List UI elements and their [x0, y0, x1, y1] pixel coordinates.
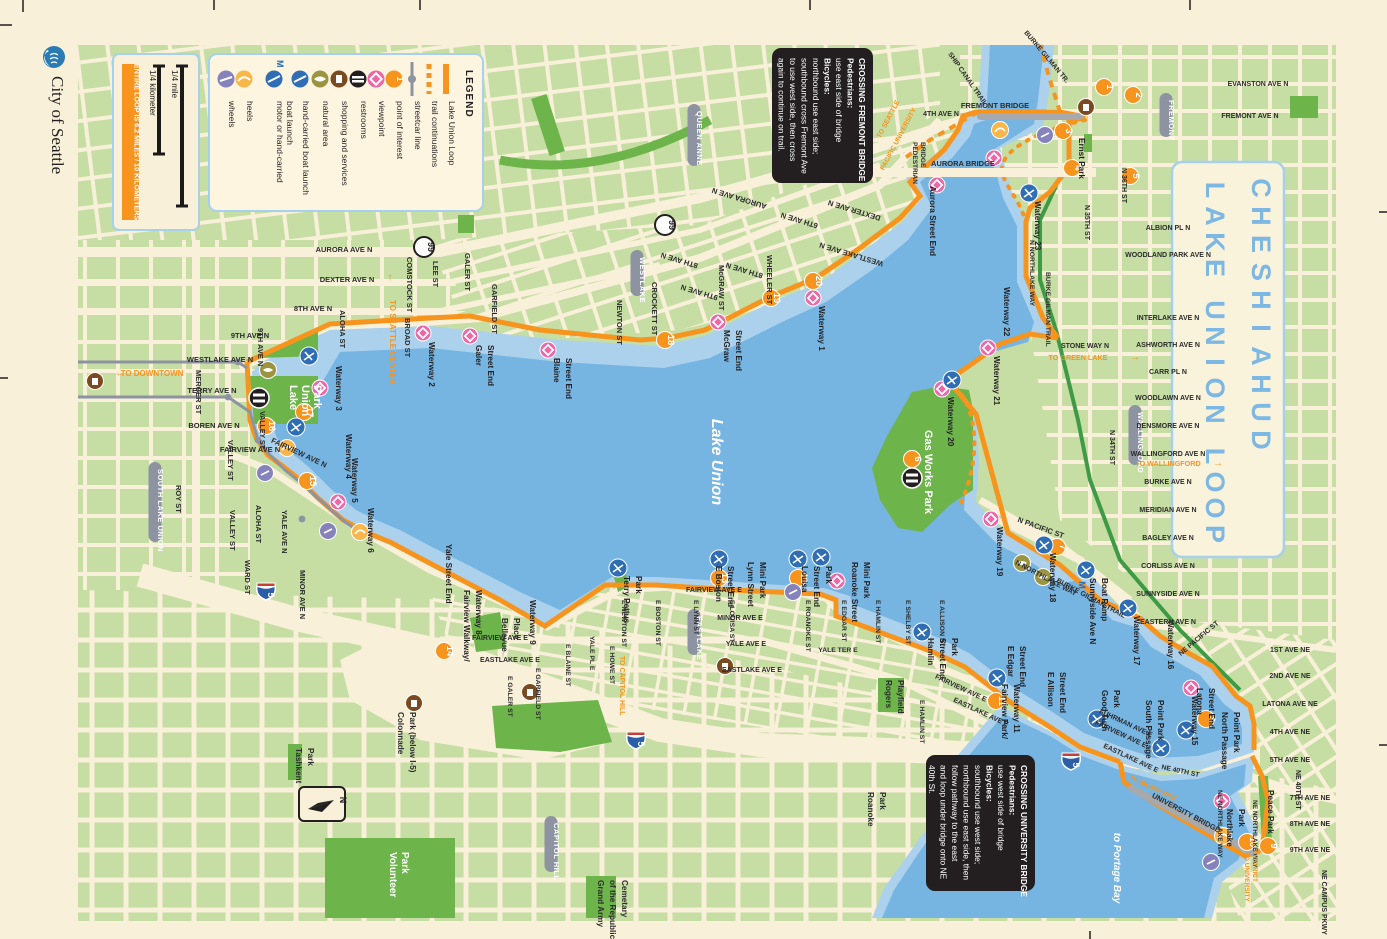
- svg-text:MINOR AVE E: MINOR AVE E: [717, 615, 763, 622]
- svg-text:MINOR AVE N: MINOR AVE N: [298, 570, 307, 619]
- svg-text:FAIRVIEW AVE E: FAIRVIEW AVE E: [472, 635, 528, 642]
- svg-text:shopping and services: shopping and services: [340, 101, 350, 186]
- svg-text:9: 9: [1268, 843, 1279, 848]
- svg-text:EASTLAKE AVE E: EASTLAKE AVE E: [722, 667, 782, 674]
- svg-text:5: 5: [1130, 173, 1141, 179]
- svg-text:use west side of bridge: use west side of bridge: [996, 765, 1006, 851]
- svg-text:BURKE AVE N: BURKE AVE N: [1144, 479, 1191, 486]
- svg-text:CORLISS AVE N: CORLISS AVE N: [1141, 563, 1195, 570]
- svg-text:WOODLAND PARK AVE N: WOODLAND PARK AVE N: [1125, 252, 1211, 259]
- svg-text:Louisa: Louisa: [800, 566, 809, 593]
- svg-text:H: H: [1246, 290, 1276, 310]
- svg-text:D: D: [1246, 430, 1276, 450]
- svg-text:EVANSTON AVE N: EVANSTON AVE N: [1228, 81, 1289, 88]
- svg-text:LEGEND: LEGEND: [463, 70, 474, 118]
- svg-text:1: 1: [1104, 84, 1115, 90]
- svg-text:Aurora Street End: Aurora Street End: [928, 186, 937, 256]
- svg-text:1/4 mile: 1/4 mile: [170, 70, 179, 99]
- svg-text:ROY ST: ROY ST: [174, 485, 183, 513]
- svg-text:Grand Army: Grand Army: [596, 880, 605, 927]
- svg-text:E SHELBY ST: E SHELBY ST: [904, 600, 911, 645]
- svg-text:SUNNYSIDE AVE N: SUNNYSIDE AVE N: [1136, 591, 1199, 598]
- svg-text:N NORTHLAKE WAY: N NORTHLAKE WAY: [1028, 240, 1035, 307]
- svg-text:E GALER ST: E GALER ST: [506, 676, 513, 718]
- svg-text:natural area: natural area: [321, 101, 331, 147]
- svg-text:SOUTH LAKE UNION: SOUTH LAKE UNION: [156, 469, 165, 552]
- svg-text:40th St.: 40th St.: [927, 765, 937, 794]
- svg-text:Point Park: Point Park: [1232, 712, 1241, 753]
- svg-text:Waterway 5: Waterway 5: [350, 458, 359, 503]
- svg-text:4TH AVE N: 4TH AVE N: [923, 111, 959, 118]
- svg-text:VALLEY ST: VALLEY ST: [226, 440, 235, 481]
- svg-text:N: N: [1200, 326, 1230, 346]
- svg-text:TO UNIVERSITY: TO UNIVERSITY: [1243, 852, 1250, 902]
- svg-text:AURORA BRIDGE: AURORA BRIDGE: [931, 159, 995, 168]
- svg-text:20: 20: [813, 276, 824, 287]
- svg-text:heels: heels: [245, 101, 255, 121]
- svg-text:ASHWORTH AVE N: ASHWORTH AVE N: [1136, 342, 1200, 349]
- svg-text:TO CAPITOL HILL: TO CAPITOL HILL: [618, 656, 625, 716]
- svg-text:Park: Park: [950, 638, 959, 656]
- svg-text:use east side of bridge: use east side of bridge: [834, 58, 844, 143]
- svg-text:BRIDGE: BRIDGE: [919, 142, 926, 168]
- svg-text:motor or hand-carried: motor or hand-carried: [275, 101, 285, 183]
- svg-text:COMSTOCK ST: COMSTOCK ST: [405, 257, 414, 313]
- svg-text:point of interest: point of interest: [395, 101, 405, 160]
- svg-text:Waterway 20: Waterway 20: [946, 397, 955, 447]
- svg-text:TO SEATTLE CENTER: TO SEATTLE CENTER: [388, 300, 397, 384]
- svg-text:WALLINGFORD AVE N: WALLINGFORD AVE N: [1131, 451, 1206, 458]
- svg-text:Street End: Street End: [812, 566, 821, 607]
- svg-text:Park: Park: [634, 576, 643, 594]
- svg-text:EASTLAKE AVE E: EASTLAKE AVE E: [480, 657, 540, 664]
- svg-text:PEDESTRIAN: PEDESTRIAN: [911, 142, 918, 184]
- svg-text:VALLEY ST: VALLEY ST: [228, 510, 237, 551]
- svg-text:again to continue on trail.: again to continue on trail.: [777, 58, 787, 152]
- svg-text:NE 40TH ST: NE 40TH ST: [1294, 770, 1301, 810]
- svg-text:Park: Park: [306, 748, 315, 766]
- svg-text:WHEELER ST: WHEELER ST: [765, 255, 774, 305]
- svg-text:DEXTER AVE N: DEXTER AVE N: [320, 275, 375, 284]
- svg-text:LATONA AVE NE: LATONA AVE NE: [1262, 701, 1318, 708]
- svg-text:viewpoint: viewpoint: [377, 101, 387, 137]
- svg-text:K: K: [1200, 232, 1230, 252]
- svg-text:CAPITOL HILL: CAPITOL HILL: [552, 823, 561, 880]
- svg-text:Fairview Park/: Fairview Park/: [1000, 684, 1009, 740]
- svg-text:N 35TH ST: N 35TH ST: [1083, 205, 1090, 241]
- svg-text:E ROANOKE ST: E ROANOKE ST: [804, 600, 811, 653]
- svg-text:boat launch: boat launch: [285, 101, 295, 145]
- svg-text:Pedestrians:: Pedestrians:: [846, 58, 856, 108]
- svg-text:WESTLAKE: WESTLAKE: [638, 257, 647, 303]
- svg-text:Cemetary: Cemetary: [620, 880, 629, 918]
- svg-text:2ND AVE NE: 2ND AVE NE: [1269, 673, 1311, 680]
- svg-text:Bicycles:: Bicycles:: [823, 58, 833, 95]
- svg-text:NE CAMPUS PKWY: NE CAMPUS PKWY: [1320, 870, 1327, 935]
- svg-text:WESTLAKE AVE N: WESTLAKE AVE N: [187, 355, 253, 364]
- svg-text:Park: Park: [399, 852, 410, 874]
- svg-text:A: A: [1246, 346, 1276, 366]
- svg-text:C: C: [1246, 178, 1276, 198]
- svg-text:Waterway 21: Waterway 21: [992, 356, 1001, 406]
- svg-text:TO GREEN LAKE: TO GREEN LAKE: [1049, 353, 1108, 362]
- svg-text:Waterway 6: Waterway 6: [366, 508, 375, 553]
- svg-text:to Portage Bay: to Portage Bay: [1111, 833, 1122, 904]
- svg-text:NE NORTHLAKE WAY: NE NORTHLAKE WAY: [1216, 790, 1223, 858]
- svg-text:WARD ST: WARD ST: [243, 560, 252, 595]
- svg-text:hand-carried boat launch: hand-carried boat launch: [301, 101, 311, 195]
- svg-text:LEE ST: LEE ST: [431, 261, 440, 288]
- svg-text:5TH AVE NE: 5TH AVE NE: [1270, 757, 1311, 764]
- svg-text:WOODLAWN AVE N: WOODLAWN AVE N: [1135, 395, 1201, 402]
- svg-text:CROCKETT ST: CROCKETT ST: [650, 282, 659, 336]
- svg-text:MERIDIAN AVE N: MERIDIAN AVE N: [1139, 507, 1196, 514]
- svg-text:Lake: Lake: [287, 385, 299, 410]
- svg-text:streetcar line: streetcar line: [413, 101, 423, 150]
- svg-text:Lynn Street: Lynn Street: [746, 562, 755, 607]
- svg-text:Point Park: Point Park: [1156, 700, 1165, 741]
- svg-text:ALOHA ST: ALOHA ST: [254, 505, 263, 543]
- svg-text:TO DOWNTOWN: TO DOWNTOWN: [121, 369, 184, 378]
- svg-text:BURKE GILMAN TRAIL: BURKE GILMAN TRAIL: [1044, 272, 1051, 347]
- svg-text:Lake Union Loop: Lake Union Loop: [447, 101, 457, 166]
- svg-text:Waterway 8: Waterway 8: [474, 590, 483, 635]
- svg-text:AURORA AVE N: AURORA AVE N: [316, 245, 373, 254]
- svg-text:ALOHA ST: ALOHA ST: [338, 310, 347, 348]
- svg-text:Waterway 19: Waterway 19: [995, 527, 1004, 577]
- svg-text:Waterway 2: Waterway 2: [427, 342, 436, 387]
- svg-text:TO WALLINGFORD: TO WALLINGFORD: [1135, 459, 1200, 468]
- svg-text:GARFIELD ST: GARFIELD ST: [490, 284, 499, 334]
- svg-text:restrooms: restrooms: [359, 101, 369, 139]
- svg-text:I: I: [1200, 358, 1230, 366]
- svg-text:CARR PL N: CARR PL N: [1149, 369, 1187, 376]
- svg-text:North Passage: North Passage: [1220, 712, 1229, 770]
- svg-text:A: A: [1200, 206, 1230, 226]
- svg-text:Sunnyside Ave N: Sunnyside Ave N: [1088, 578, 1097, 644]
- svg-text:BOREN AVE N: BOREN AVE N: [188, 421, 239, 430]
- svg-text:I: I: [1246, 324, 1276, 332]
- svg-text:O: O: [1200, 471, 1230, 492]
- svg-text:H: H: [1246, 374, 1276, 394]
- svg-text:McGRAW ST: McGRAW ST: [717, 265, 726, 311]
- svg-text:Street End: Street End: [1207, 688, 1216, 729]
- svg-text:E NEWTON ST: E NEWTON ST: [620, 600, 627, 648]
- svg-text:Blaine: Blaine: [552, 358, 561, 383]
- svg-text:YALE TER E: YALE TER E: [818, 647, 858, 654]
- svg-text:E LYNN ST: E LYNN ST: [692, 600, 699, 636]
- svg-text:E: E: [1246, 235, 1276, 253]
- svg-text:Latona: Latona: [1195, 688, 1204, 715]
- svg-text:5: 5: [636, 741, 646, 746]
- svg-text:CROSSING UNIVERSITY BRIDGE: CROSSING UNIVERSITY BRIDGE: [1019, 765, 1029, 897]
- svg-text:←: ←: [115, 368, 125, 379]
- svg-text:H: H: [1246, 206, 1276, 226]
- svg-text:N: N: [338, 797, 348, 804]
- svg-text:Pedestrians:: Pedestrians:: [1008, 765, 1018, 815]
- svg-text:southbound cross Fremont Ave: southbound cross Fremont Ave: [800, 58, 810, 174]
- svg-text:O: O: [1200, 497, 1230, 518]
- svg-text:Galer: Galer: [474, 345, 483, 367]
- svg-text:E GARFIELD ST: E GARFIELD ST: [534, 668, 541, 721]
- svg-text:trail continuations: trail continuations: [430, 101, 440, 167]
- svg-text:8TH AVE N: 8TH AVE N: [294, 304, 332, 313]
- svg-text:Gas Works Park: Gas Works Park: [922, 430, 934, 515]
- svg-text:CROSSING FREMONT BRIDGE: CROSSING FREMONT BRIDGE: [857, 58, 867, 182]
- svg-text:Lake Union: Lake Union: [708, 419, 725, 505]
- svg-text:Waterway 1: Waterway 1: [817, 306, 826, 351]
- svg-text:Park: Park: [824, 566, 833, 584]
- svg-text:FREMONT: FREMONT: [1167, 100, 1176, 141]
- svg-text:YALE AVE N: YALE AVE N: [280, 510, 289, 553]
- svg-text:Ernst Park: Ernst Park: [1077, 138, 1086, 179]
- svg-text:NEWTON ST: NEWTON ST: [615, 300, 624, 345]
- svg-text:E LOUISA ST: E LOUISA ST: [728, 600, 735, 643]
- svg-text:ALBION PL N: ALBION PL N: [1146, 225, 1191, 232]
- svg-text:Mini Park: Mini Park: [862, 562, 871, 599]
- svg-text:E ALLISON ST: E ALLISON ST: [938, 600, 945, 647]
- svg-text:2: 2: [1133, 92, 1144, 97]
- svg-text:7: 7: [1057, 544, 1068, 549]
- svg-text:99: 99: [667, 220, 677, 230]
- svg-text:Northlake: Northlake: [1225, 809, 1234, 847]
- svg-text:FREMONT AVE N: FREMONT AVE N: [1221, 113, 1278, 120]
- svg-text:Street End: Street End: [564, 358, 573, 399]
- svg-text:9TH AVE NE: 9TH AVE NE: [1290, 847, 1331, 854]
- svg-text:follow pathway to the east: follow pathway to the east: [950, 765, 960, 862]
- svg-text:FAIRVIEW AVE E: FAIRVIEW AVE E: [686, 587, 742, 594]
- svg-text:5: 5: [266, 592, 276, 597]
- svg-text:EASTERN AVE N: EASTERN AVE N: [1140, 619, 1196, 626]
- svg-text:QUEEN ANNE: QUEEN ANNE: [695, 111, 704, 166]
- svg-text:O: O: [1200, 377, 1230, 398]
- svg-text:E BLAINE ST: E BLAINE ST: [564, 644, 571, 687]
- svg-text:E Allison: E Allison: [1046, 672, 1055, 707]
- svg-text:Colonnade: Colonnade: [396, 712, 405, 755]
- svg-text:wheels: wheels: [227, 100, 237, 127]
- svg-text:McGraw: McGraw: [722, 330, 731, 362]
- svg-text:INTERLAKE AVE N: INTERLAKE AVE N: [1137, 315, 1200, 322]
- svg-text:City of Seattle: City of Seattle: [48, 76, 67, 174]
- svg-text:Street End: Street End: [1018, 646, 1027, 687]
- svg-text:E EDGAR ST: E EDGAR ST: [840, 600, 847, 642]
- svg-text:9TH AVE N: 9TH AVE N: [256, 328, 265, 366]
- svg-text:15: 15: [307, 476, 318, 487]
- svg-text:Union: Union: [299, 385, 311, 416]
- svg-text:Street End: Street End: [1058, 672, 1067, 713]
- svg-text:Hamlin: Hamlin: [926, 638, 935, 665]
- svg-text:Street End: Street End: [734, 330, 743, 371]
- svg-text:U: U: [1200, 300, 1230, 320]
- svg-text:M: M: [275, 60, 285, 68]
- svg-text:L: L: [1200, 182, 1230, 199]
- svg-text:Yale Street End: Yale Street End: [444, 544, 453, 604]
- svg-text:6: 6: [912, 456, 923, 461]
- svg-text:E: E: [1200, 259, 1230, 277]
- svg-text:Waterway 16: Waterway 16: [1166, 620, 1175, 670]
- svg-text:E HOWE ST: E HOWE ST: [608, 646, 615, 685]
- svg-text:8TH AVE NE: 8TH AVE NE: [1290, 821, 1331, 828]
- svg-text:Waterway 11: Waterway 11: [1012, 684, 1021, 733]
- svg-text:→: →: [1130, 352, 1140, 363]
- svg-text:DENSMORE AVE N: DENSMORE AVE N: [1136, 423, 1199, 430]
- svg-text:of the Republic: of the Republic: [608, 880, 617, 939]
- svg-text:southbound use west side;: southbound use west side;: [973, 765, 983, 864]
- svg-text:3: 3: [1063, 128, 1074, 133]
- svg-text:Park: Park: [878, 792, 887, 810]
- svg-text:BROAD ST: BROAD ST: [403, 318, 412, 358]
- svg-text:Bicycles:: Bicycles:: [985, 765, 995, 802]
- svg-text:ENTIRE LOOP IS 6.2 MILES / 10: ENTIRE LOOP IS 6.2 MILES / 10 KILOMETERS: [133, 64, 142, 221]
- svg-text:P: P: [1200, 525, 1230, 543]
- svg-text:↑: ↑: [388, 272, 393, 283]
- svg-text:U: U: [1246, 402, 1276, 422]
- svg-text:VALLEY ST: VALLEY ST: [258, 411, 265, 450]
- svg-text:FREMONT BRIDGE: FREMONT BRIDGE: [961, 101, 1029, 110]
- svg-text:MERCER ST: MERCER ST: [194, 370, 203, 415]
- svg-text:Tashkent: Tashkent: [294, 748, 303, 784]
- svg-text:STONE WAY N: STONE WAY N: [1061, 343, 1109, 350]
- svg-text:Mini Park: Mini Park: [758, 562, 767, 599]
- svg-text:99: 99: [426, 242, 436, 252]
- svg-text:5: 5: [1071, 762, 1081, 767]
- svg-text:Roanoke: Roanoke: [866, 792, 875, 827]
- svg-text:Waterway 9: Waterway 9: [528, 600, 537, 645]
- svg-text:4TH AVE NE: 4TH AVE NE: [1270, 729, 1311, 736]
- svg-text:BAGLEY AVE N: BAGLEY AVE N: [1142, 535, 1194, 542]
- svg-text:Street End: Street End: [486, 345, 495, 386]
- svg-text:Park (below I-5): Park (below I-5): [408, 712, 417, 773]
- svg-text:northbound use east side;: northbound use east side;: [811, 58, 821, 154]
- svg-text:and loop under bridge onto NE: and loop under bridge onto NE: [939, 765, 949, 879]
- svg-text:Park: Park: [311, 385, 323, 410]
- svg-text:N 36TH ST: N 36TH ST: [1120, 168, 1127, 204]
- svg-text:E HAMLIN ST: E HAMLIN ST: [918, 700, 925, 744]
- svg-text:1ST AVE NE: 1ST AVE NE: [1270, 647, 1310, 654]
- svg-text:1: 1: [395, 76, 405, 81]
- svg-text:1/4 kilometer: 1/4 kilometer: [148, 70, 157, 116]
- svg-text:Peace Park: Peace Park: [1266, 790, 1275, 834]
- svg-text:N 34TH ST: N 34TH ST: [1108, 430, 1115, 466]
- svg-text:E Boston: E Boston: [714, 566, 723, 602]
- svg-text:E HAMLIN ST: E HAMLIN ST: [874, 600, 881, 644]
- svg-text:Playfield: Playfield: [896, 680, 905, 714]
- svg-text:S: S: [1246, 263, 1276, 281]
- svg-text:GALER ST: GALER ST: [463, 253, 472, 291]
- svg-text:Park: Park: [1112, 690, 1121, 708]
- svg-text:Rogers: Rogers: [884, 680, 893, 709]
- svg-text:Waterway 22: Waterway 22: [1002, 287, 1011, 337]
- svg-text:14: 14: [444, 646, 455, 657]
- svg-text:DISTRICT: DISTRICT: [1251, 852, 1258, 882]
- svg-text:to use west side, then cross: to use west side, then cross: [788, 58, 798, 161]
- svg-text:E Edgar: E Edgar: [1006, 646, 1015, 678]
- svg-text:Volunteer: Volunteer: [387, 852, 398, 897]
- svg-text:northbound use east side, then: northbound use east side, then: [962, 765, 972, 880]
- svg-text:YALE PL E: YALE PL E: [588, 636, 595, 671]
- svg-text:Waterway 3: Waterway 3: [334, 366, 343, 411]
- svg-text:18: 18: [665, 335, 676, 346]
- svg-text:Roanoke Street: Roanoke Street: [850, 562, 859, 622]
- svg-text:Park: Park: [1237, 809, 1246, 827]
- svg-text:Fairview Walkway/: Fairview Walkway/: [462, 590, 471, 662]
- svg-text:N: N: [1200, 404, 1230, 424]
- svg-text:E BOSTON ST: E BOSTON ST: [654, 600, 661, 647]
- svg-text:16: 16: [266, 421, 277, 432]
- svg-text:→: →: [1213, 458, 1223, 469]
